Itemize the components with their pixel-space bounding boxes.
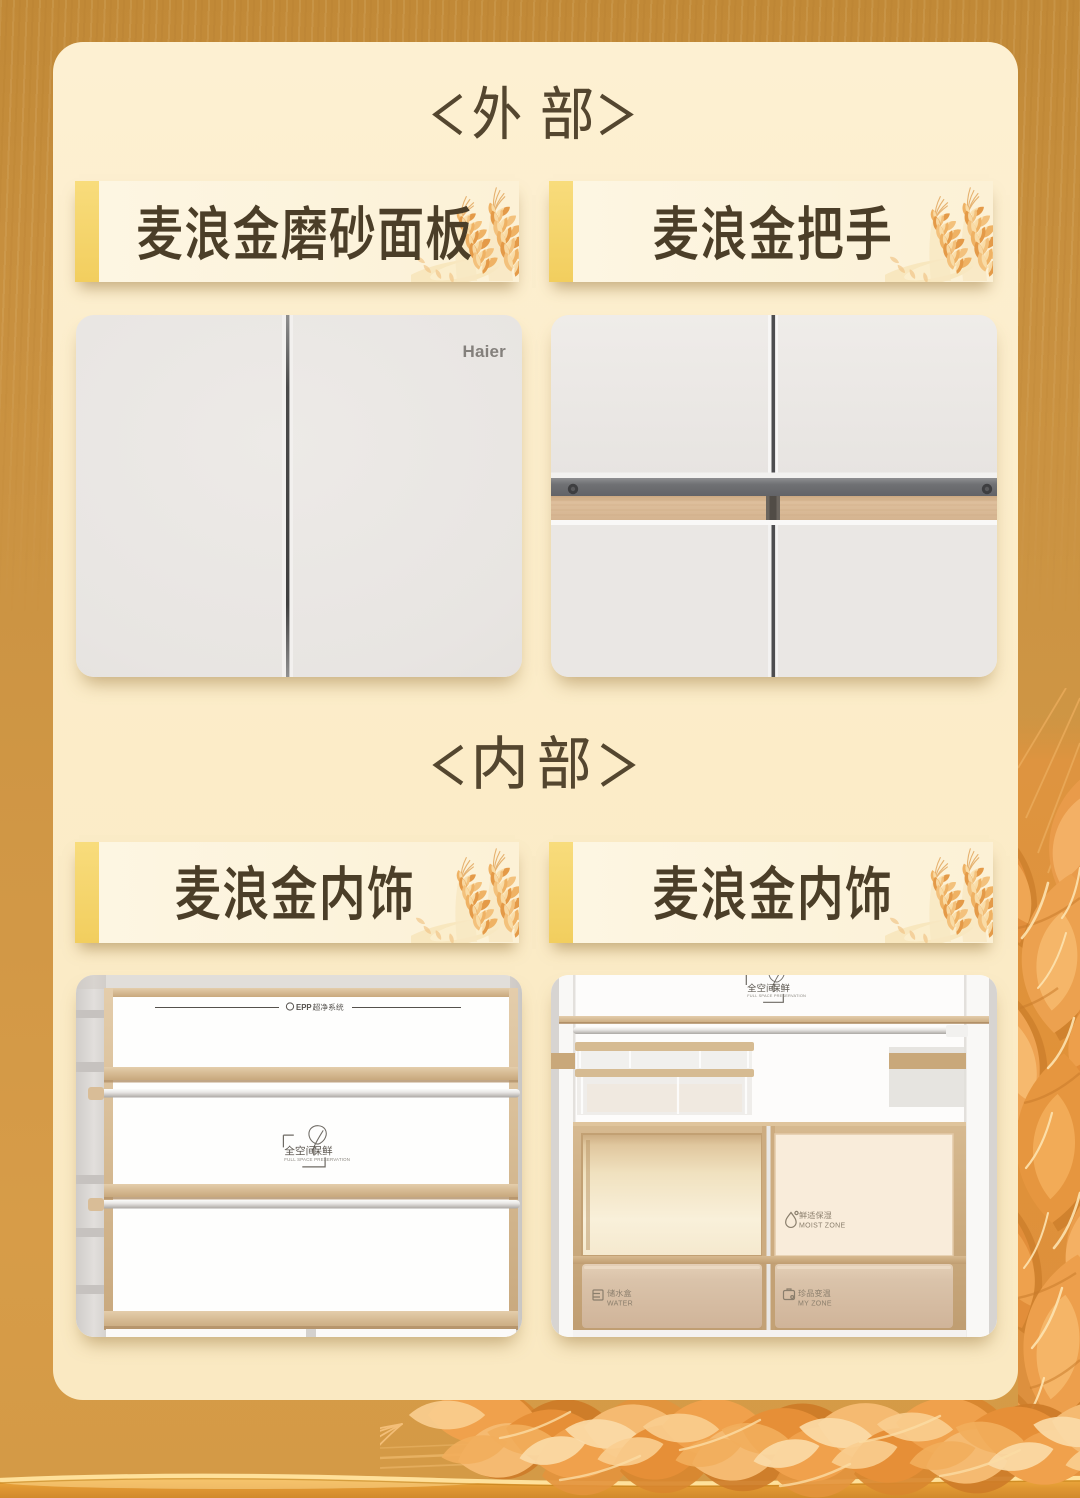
svg-text:MY ZONE: MY ZONE [798, 1301, 832, 1308]
svg-text:MOIST ZONE: MOIST ZONE [799, 1223, 845, 1230]
svg-text:WATER: WATER [607, 1301, 633, 1308]
svg-text:EPP: EPP [296, 1003, 312, 1012]
svg-text:FULL SPACE PRESERVATION: FULL SPACE PRESERVATION [747, 993, 806, 998]
svg-text:FULL SPACE PRESERVATION: FULL SPACE PRESERVATION [284, 1157, 350, 1162]
